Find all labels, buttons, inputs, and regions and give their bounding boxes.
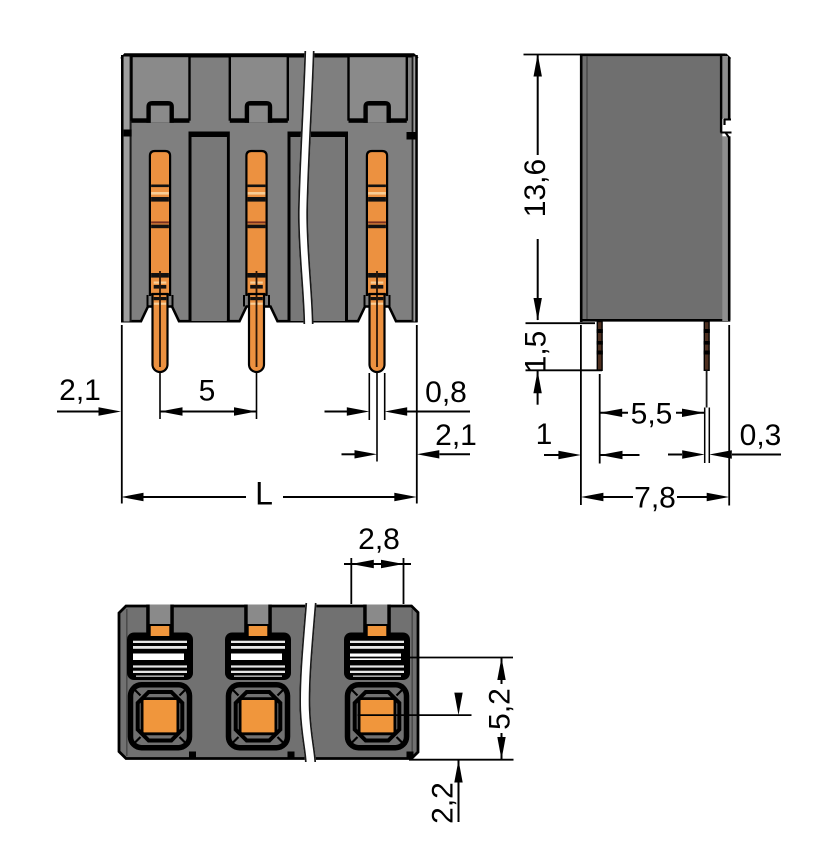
svg-text:2,8: 2,8 [358, 523, 400, 556]
svg-text:0,3: 0,3 [740, 419, 782, 452]
svg-text:L: L [255, 476, 273, 512]
svg-text:5,5: 5,5 [631, 398, 673, 431]
svg-text:2,2: 2,2 [427, 782, 460, 824]
svg-text:13,6: 13,6 [519, 159, 552, 217]
svg-text:1: 1 [536, 418, 553, 451]
svg-text:5: 5 [199, 375, 216, 408]
svg-text:0,8: 0,8 [425, 376, 467, 409]
svg-text:2,1: 2,1 [435, 419, 477, 452]
svg-text:1,5: 1,5 [520, 331, 553, 373]
svg-text:7,8: 7,8 [634, 482, 676, 515]
svg-text:5,2: 5,2 [484, 688, 517, 730]
svg-text:2,1: 2,1 [59, 374, 101, 407]
